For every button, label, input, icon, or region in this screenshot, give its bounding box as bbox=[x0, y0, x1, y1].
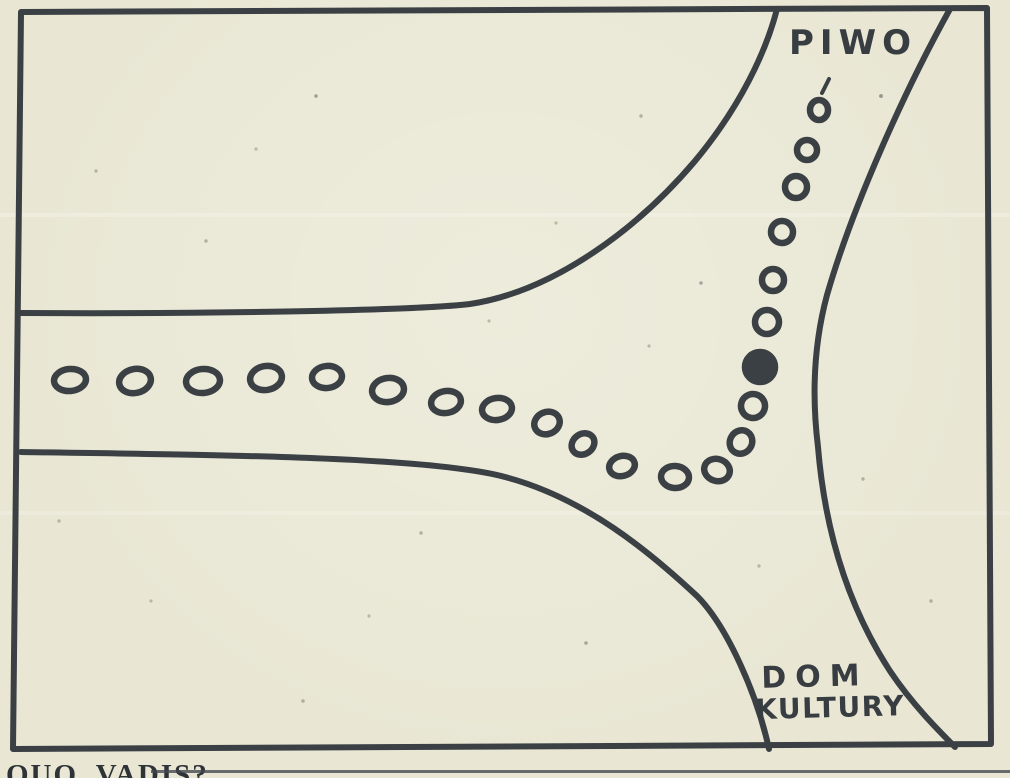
label-piwo: PIWO bbox=[789, 23, 917, 63]
footprint-trail bbox=[53, 100, 828, 489]
footprint-dot bbox=[725, 426, 756, 458]
cartoon-page: PIWO DOM KULTURY QUO VADIS? bbox=[0, 0, 1010, 778]
road-fork-cartoon: PIWO DOM KULTURY bbox=[0, 0, 1010, 778]
footprint-dot bbox=[785, 176, 807, 198]
footprint-dot bbox=[607, 453, 637, 479]
footprint-accent-tick bbox=[822, 79, 829, 93]
footprint-dot bbox=[770, 220, 794, 244]
label-dom-line2: KULTURY bbox=[755, 689, 906, 726]
footprint-dot bbox=[531, 408, 563, 438]
footprint-dot bbox=[701, 456, 733, 485]
footprint-dot bbox=[248, 363, 284, 392]
footprint-dot bbox=[797, 140, 817, 160]
footprint-dot bbox=[117, 366, 153, 396]
footprint-dot bbox=[370, 376, 405, 404]
road-top-edge bbox=[21, 9, 777, 313]
footprint-dot bbox=[311, 364, 343, 389]
footprint-dot bbox=[185, 368, 221, 395]
label-dom-kultury: DOM KULTURY bbox=[754, 657, 905, 726]
footprint-dot bbox=[755, 310, 779, 334]
footprint-dot bbox=[481, 396, 514, 422]
road-bottom-edge bbox=[21, 452, 769, 749]
footprint-dot bbox=[739, 392, 767, 420]
footprint-dot bbox=[810, 100, 828, 120]
footprint-dot bbox=[429, 389, 462, 416]
footprint-dot bbox=[567, 429, 598, 459]
road-right-edge bbox=[815, 9, 955, 747]
caption-rule bbox=[151, 770, 1010, 773]
footprint-dot bbox=[660, 465, 689, 489]
frame-border bbox=[13, 8, 991, 749]
caption-quo-vadis: QUO VADIS? bbox=[6, 759, 209, 778]
footprint-dot bbox=[53, 368, 87, 393]
footprint-dot bbox=[762, 269, 784, 291]
footprint-dot-filled bbox=[745, 352, 775, 382]
